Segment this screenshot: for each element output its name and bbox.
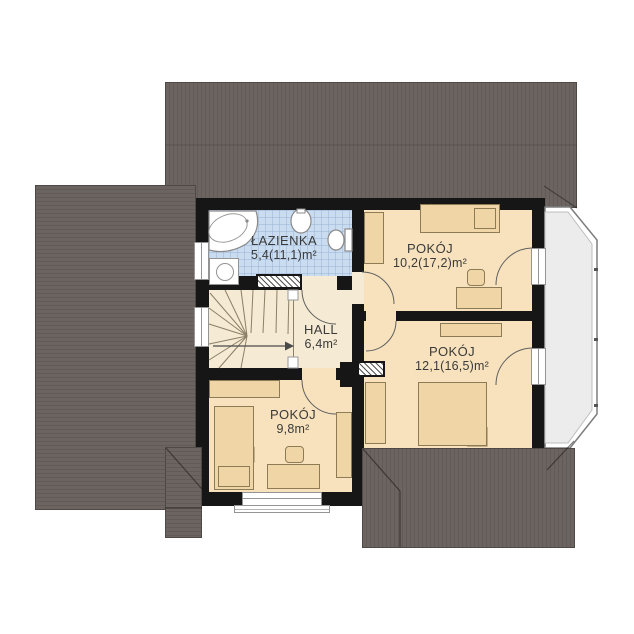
room-bottom-left-name: POKÓJ <box>270 407 316 422</box>
label-room-bottom-right: POKÓJ 12,1(16,5)m² <box>415 344 489 373</box>
hall-area: 6,4m² <box>304 337 338 351</box>
room-top-right-name: POKÓJ <box>393 241 467 256</box>
bathroom-area: 5,4(11,1)m² <box>251 248 317 262</box>
room-top-right-area: 10,2(17,2)m² <box>393 256 467 270</box>
room-bottom-right-name: POKÓJ <box>415 344 489 359</box>
floor-plan: ŁAZIENKA 5,4(11,1)m² POKÓJ 10,2(17,2)m² … <box>0 0 634 634</box>
label-room-bottom-left: POKÓJ 9,8m² <box>270 407 316 436</box>
hall-name: HALL <box>304 322 338 337</box>
label-room-top-right: POKÓJ 10,2(17,2)m² <box>393 241 467 270</box>
lower-roof-lines <box>0 0 634 634</box>
label-bathroom: ŁAZIENKA 5,4(11,1)m² <box>251 233 317 262</box>
room-bottom-left-area: 9,8m² <box>270 422 316 436</box>
room-bottom-right-area: 12,1(16,5)m² <box>415 359 489 373</box>
bathroom-name: ŁAZIENKA <box>251 233 317 248</box>
label-hall: HALL 6,4m² <box>304 322 338 351</box>
